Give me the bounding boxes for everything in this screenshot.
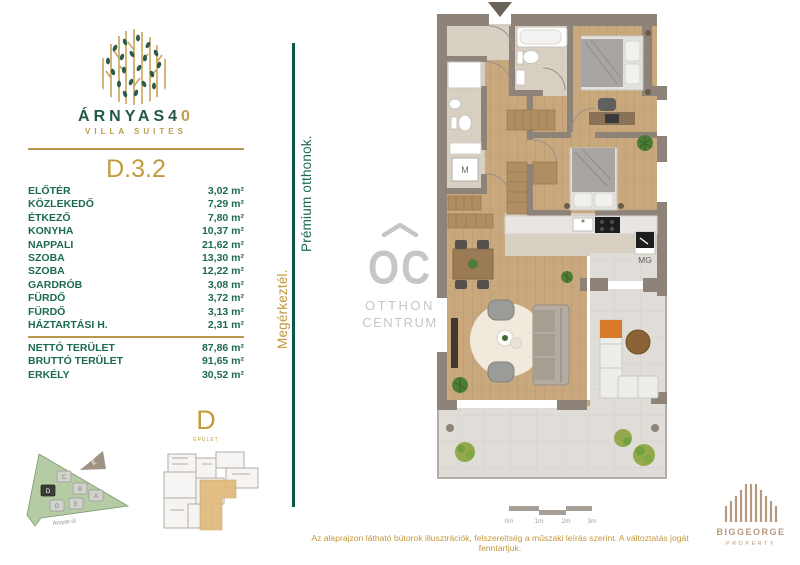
svg-text:D: D <box>46 489 51 495</box>
developer-name: BIGGEORGE <box>716 527 785 537</box>
room-name: HÁZTARTÁSI H. <box>28 319 108 332</box>
room-row: GARDRÓB3,08 m² <box>28 279 244 292</box>
building-letter: D <box>186 405 226 436</box>
bathtub <box>517 27 567 47</box>
room-name: ÉTKEZŐ <box>28 212 71 225</box>
room-name: FÜRDŐ <box>28 306 65 319</box>
total-area: 91,65 m² <box>202 355 244 368</box>
svg-text:M: M <box>461 165 469 175</box>
shelf <box>450 143 481 154</box>
roof-chevron-icon <box>380 222 420 237</box>
room-name: KÖZLEKEDŐ <box>28 198 94 211</box>
svg-text:MG: MG <box>638 255 652 265</box>
room-row: SZOBA12,22 m² <box>28 265 244 278</box>
room-row: HÁZTARTÁSI H.2,31 m² <box>28 319 244 332</box>
brand-subtitle: VILLA SUITES <box>28 127 244 136</box>
watermark-line1: OTTHON <box>354 298 446 313</box>
room-name: SZOBA <box>28 252 65 265</box>
developer-division: PROPERTY <box>726 541 776 547</box>
room-row: SZOBA13,30 m² <box>28 252 244 265</box>
disclaimer-text: Az alaprajzon látható bútorok illusztrác… <box>290 533 710 553</box>
svg-text:2m: 2m <box>561 518 570 525</box>
totals-list: NETTÓ TERÜLET87,86 m² BRUTTÓ TERÜLET91,6… <box>28 342 244 382</box>
street-label: Árnyas út <box>52 517 76 527</box>
level-outline <box>158 450 270 535</box>
total-area: 87,86 m² <box>202 342 244 355</box>
room-area: 2,31 m² <box>208 319 244 332</box>
bed <box>581 30 651 95</box>
divider-top <box>28 148 244 150</box>
svg-text:C: C <box>62 475 67 481</box>
svg-text:E: E <box>74 502 78 508</box>
sink <box>516 70 525 85</box>
brand-tree-icon <box>95 28 173 106</box>
total-name: BRUTTÓ TERÜLET <box>28 355 123 368</box>
toilet <box>517 51 539 65</box>
room-list: ELŐTÉR3,02 m² KÖZLEKEDŐ7,29 m² ÉTKEZŐ7,8… <box>28 185 244 332</box>
bed <box>564 148 624 210</box>
room-row: KÖZLEKEDŐ7,29 m² <box>28 198 244 211</box>
room-name: FÜRDŐ <box>28 292 65 305</box>
building-sublabel: ÉPÜLET <box>180 437 232 443</box>
watermark-line2: CENTRUM <box>354 315 446 330</box>
room-area: 21,62 m² <box>202 239 244 252</box>
svg-text:A: A <box>94 494 98 500</box>
total-row: ERKÉLY30,52 m² <box>28 369 244 382</box>
unit-id: D.3.2 <box>28 155 244 184</box>
slogan-premium: Prémium otthonok. <box>299 135 314 252</box>
room-name: KONYHA <box>28 225 74 238</box>
watermark-initials: OC <box>354 242 446 294</box>
room-row: ELŐTÉR3,02 m² <box>28 185 244 198</box>
entrance-arrow-icon <box>488 2 512 17</box>
room-area: 10,37 m² <box>202 225 244 238</box>
room-row: ÉTKEZŐ7,80 m² <box>28 212 244 225</box>
svg-text:G: G <box>55 504 60 510</box>
svg-text:0m: 0m <box>504 518 513 525</box>
svg-text:3m: 3m <box>587 518 596 525</box>
plant-icon <box>637 135 653 151</box>
room-row: NAPPALI21,62 m² <box>28 239 244 252</box>
site-plan: É C D B A G E Árnyas út <box>25 443 140 539</box>
room-name: SZOBA <box>28 265 65 278</box>
shower <box>448 62 481 88</box>
tv-cabinet <box>451 318 458 368</box>
room-row: KONYHA10,37 m² <box>28 225 244 238</box>
slogan-arrive: Megérkeztél. <box>275 269 290 349</box>
total-name: ERKÉLY <box>28 369 70 382</box>
room-area: 3,13 m² <box>208 306 244 319</box>
plant-icon <box>561 271 573 283</box>
room-area: 13,30 m² <box>202 252 244 265</box>
biggeorge-logo: BIGGEORGE PROPERTY <box>710 476 792 550</box>
room-area: 7,29 m² <box>208 198 244 211</box>
washing-machine: M <box>452 158 478 181</box>
vertical-divider <box>292 43 295 507</box>
outdoor-table <box>626 330 650 354</box>
otthon-centrum-watermark: OC OTTHON CENTRUM <box>354 222 446 330</box>
room-area: 12,22 m² <box>202 265 244 278</box>
svg-text:B: B <box>78 487 82 493</box>
kitchen-counter <box>505 216 657 234</box>
room-row: FÜRDŐ3,13 m² <box>28 306 244 319</box>
room-name: ELŐTÉR <box>28 185 71 198</box>
room-area: 3,08 m² <box>208 279 244 292</box>
plant-icon <box>452 377 468 393</box>
scale-bar: 0m 1m 2m 3m <box>503 503 598 525</box>
room-name: NAPPALI <box>28 239 73 252</box>
sofa <box>533 305 569 385</box>
total-row: NETTÓ TERÜLET87,86 m² <box>28 342 244 355</box>
room-area: 3,72 m² <box>208 292 244 305</box>
divider-totals <box>28 336 244 338</box>
room-name: GARDRÓB <box>28 279 82 292</box>
highlighted-unit <box>200 480 236 530</box>
room-area: 3,02 m² <box>208 185 244 198</box>
biggeorge-tower-icon <box>726 484 776 522</box>
room-area: 7,80 m² <box>208 212 244 225</box>
total-row: BRUTTÓ TERÜLET91,65 m² <box>28 355 244 368</box>
svg-text:1m: 1m <box>534 518 543 525</box>
total-name: NETTÓ TERÜLET <box>28 342 115 355</box>
brand-name: ÁRNYAS40 <box>28 108 244 126</box>
total-area: 30,52 m² <box>202 369 244 382</box>
room-row: FÜRDŐ3,72 m² <box>28 292 244 305</box>
